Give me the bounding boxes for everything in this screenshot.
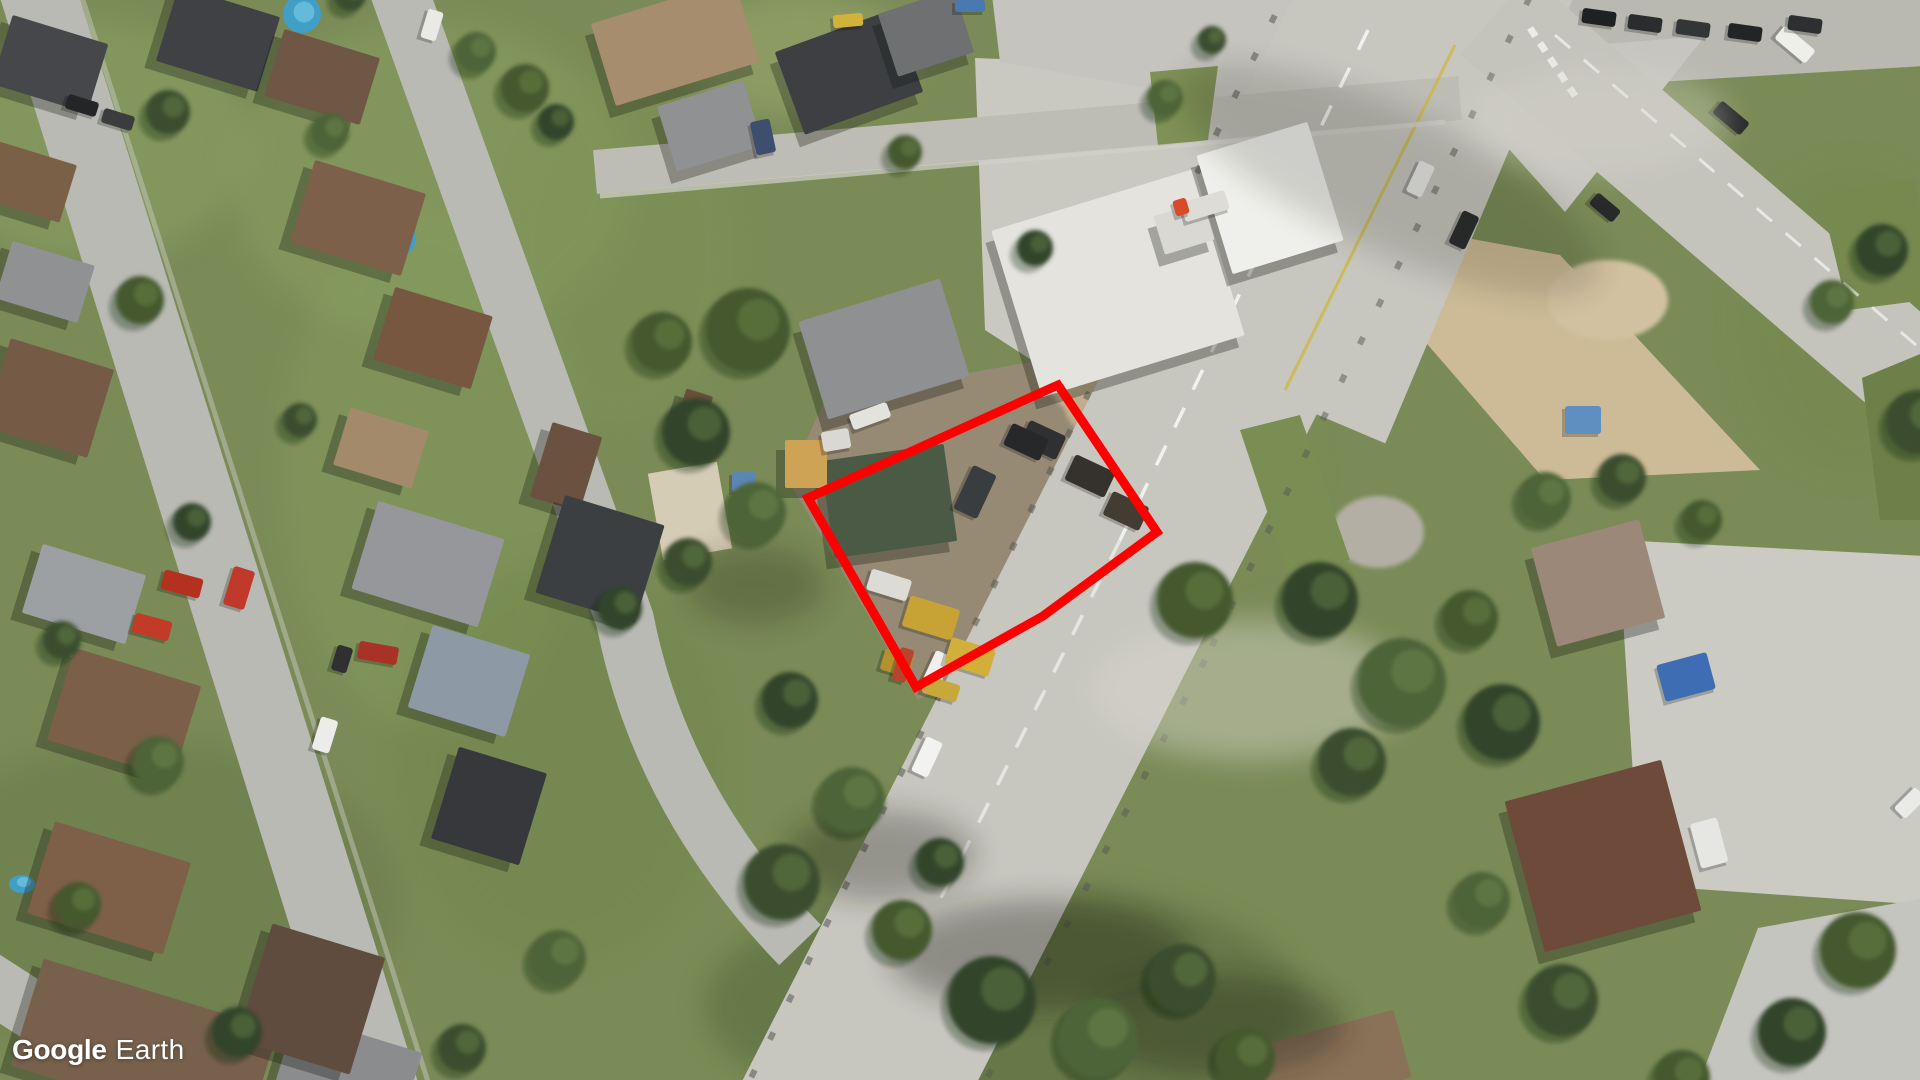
aerial-imagery — [0, 0, 1920, 1080]
vehicle — [832, 13, 863, 29]
watermark-earth-text: Earth — [116, 1034, 185, 1065]
vehicle — [1565, 406, 1601, 434]
watermark-google-text: Google — [12, 1034, 107, 1065]
vehicle — [955, 0, 985, 12]
google-earth-watermark: GoogleEarth — [12, 1034, 185, 1066]
google-earth-viewport[interactable]: GoogleEarth — [0, 0, 1920, 1080]
